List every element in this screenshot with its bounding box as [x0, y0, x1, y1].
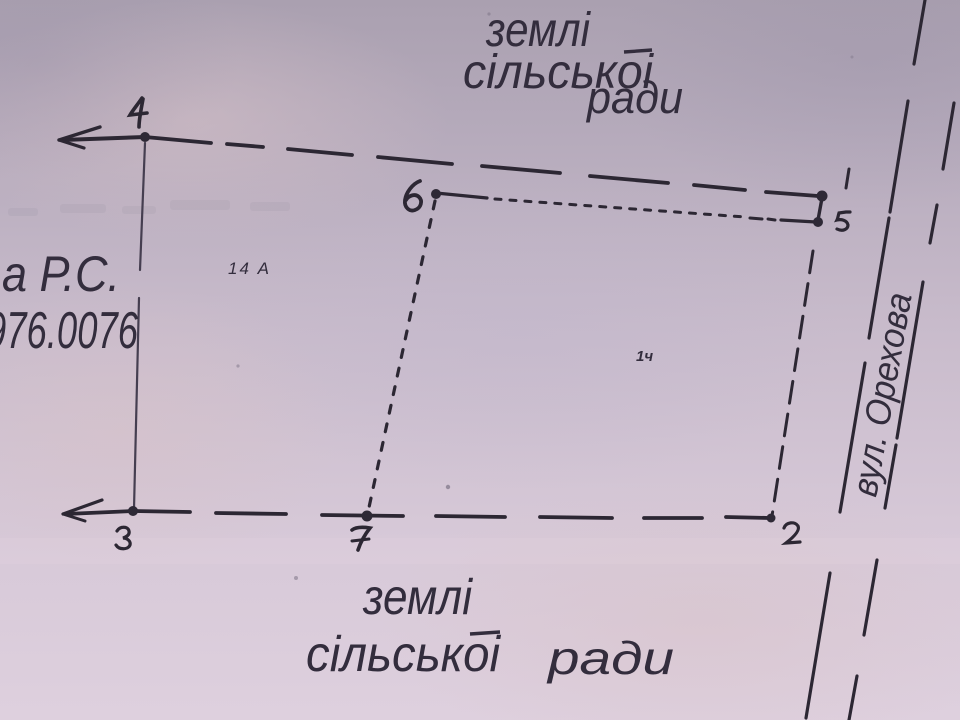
svg-text:землі: землі: [362, 569, 474, 625]
svg-text:14 А: 14 А: [228, 259, 271, 278]
svg-text:976.0076: 976.0076: [0, 302, 138, 360]
svg-text:а Р.С.: а Р.С.: [2, 246, 120, 302]
svg-text:ради: ради: [585, 72, 683, 123]
svg-text:ради: ради: [546, 632, 674, 684]
svg-text:1ч: 1ч: [636, 348, 653, 365]
